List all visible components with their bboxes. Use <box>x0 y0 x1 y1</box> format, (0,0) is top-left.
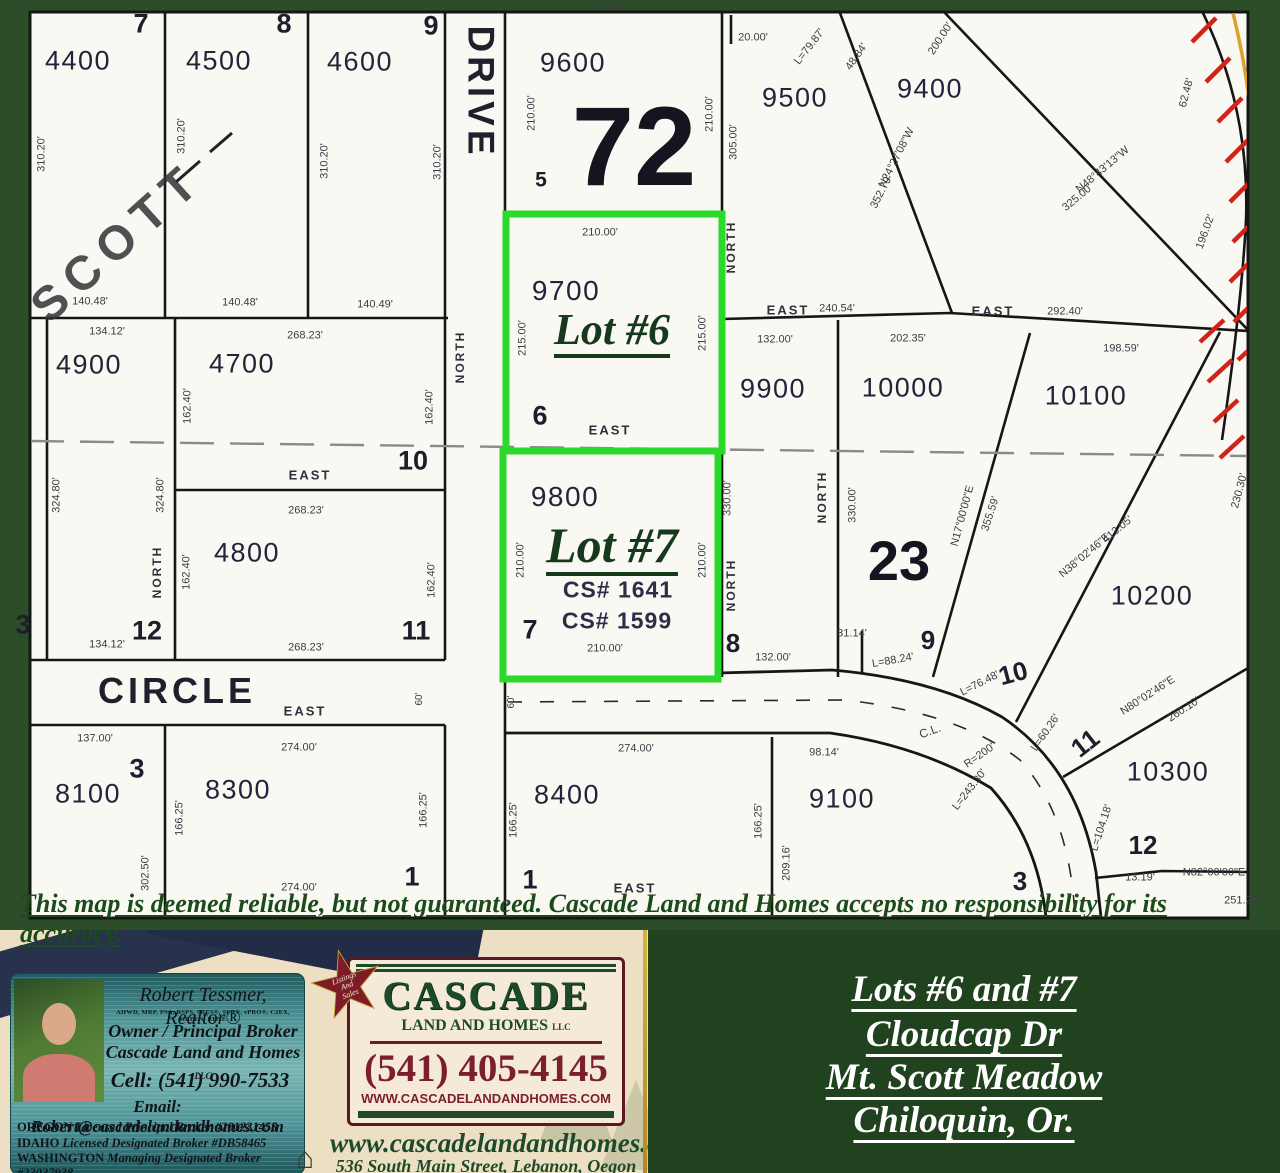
listing-city: Chiloquin, Or. <box>648 1099 1280 1142</box>
office-address: 536 South Main Street, Lebanon, Oegon 97… <box>330 1156 642 1173</box>
bottom-banner: Robert Tessmer, Realtor® AHWD, MRP, PSA,… <box>0 930 1280 1173</box>
map-disclaimer: This map is deemed reliable, but not gua… <box>20 889 1170 949</box>
realtor-photo-shirt <box>23 1054 95 1102</box>
license-state: IDAHO <box>17 1136 59 1150</box>
cascade-brand-sub: LAND AND HOMES LLC <box>350 1017 622 1035</box>
realtor-title: Owner / Principal Broker <box>103 1021 303 1042</box>
brand-sub-text: LAND AND HOMES <box>401 1017 548 1034</box>
license-idaho: IDAHO Licensed Designated Broker #DB5846… <box>17 1136 302 1151</box>
banner-right-panel: Lots #6 and #7 Cloudcap Dr Mt. Scott Mea… <box>648 930 1280 1173</box>
page: { "colors":{"frame_green":"#2b4e29","pan… <box>0 0 1280 1173</box>
website-url[interactable]: www.cascadelandandhomes.com <box>330 1128 642 1159</box>
listing-subdivision: Mt. Scott Meadow <box>648 1056 1280 1099</box>
banner-left-panel: Robert Tessmer, Realtor® AHWD, MRP, PSA,… <box>0 930 648 1173</box>
website-caps[interactable]: WWW.CASCADELANDANDHOMES.COM <box>350 1091 622 1106</box>
license-detail: Licensed Principal Broker #201231455 <box>73 1120 278 1134</box>
license-detail: Licensed Designated Broker #DB58465 <box>59 1136 266 1150</box>
maroon-rule <box>370 1041 602 1044</box>
license-washington: WASHINGTON Managing Designated Broker #2… <box>17 1151 302 1173</box>
realtor-photo <box>14 979 104 1102</box>
realtor-cell-phone[interactable]: Cell: (541) 990-7533 <box>97 1068 303 1093</box>
office-phone[interactable]: (541) 405-4145 <box>350 1046 622 1091</box>
cascade-logo-card: CASCADE LAND AND HOMES LLC (541) 405-414… <box>347 957 625 1126</box>
green-bar <box>358 1111 614 1118</box>
license-state: WASHINGTON <box>17 1151 104 1165</box>
listing-street: Cloudcap Dr <box>648 1013 1280 1056</box>
realtor-photo-face <box>42 1003 76 1045</box>
gold-divider <box>643 930 647 1173</box>
listing-title: Lots #6 and #7 <box>648 968 1280 1011</box>
plat-map-drawing <box>0 0 1280 930</box>
license-oregon: OREGON Licensed Principal Broker #201231… <box>17 1120 302 1135</box>
brand-suffix: LLC <box>552 1022 571 1032</box>
realtor-business-card: Robert Tessmer, Realtor® AHWD, MRP, PSA,… <box>10 973 305 1173</box>
green-rule <box>356 964 616 967</box>
plat-map: DRIVECIRCLESCOTT440045004600960095009400… <box>0 0 1280 930</box>
license-state: OREGON <box>17 1120 73 1134</box>
realtor-company-name: Cascade Land and Homes <box>106 1042 301 1062</box>
